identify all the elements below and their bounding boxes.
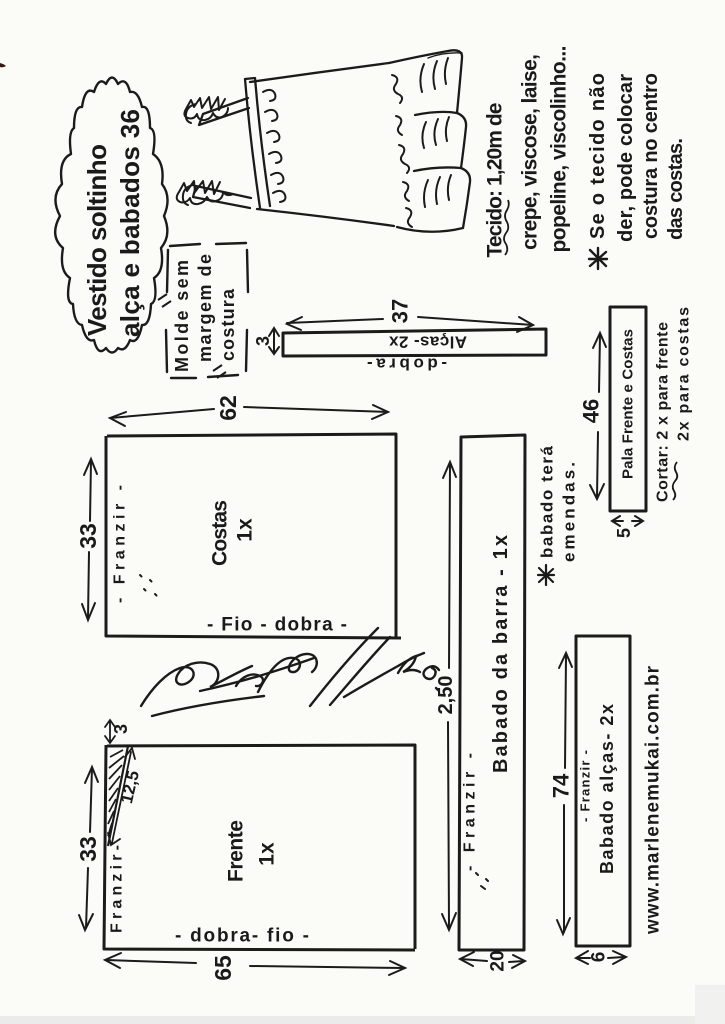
svg-text:5: 5	[614, 528, 634, 538]
svg-text:-dobra-: -dobra-	[367, 355, 447, 374]
svg-text:3: 3	[111, 724, 131, 734]
svg-text:33: 33	[75, 836, 101, 862]
svg-text:Tecido: 1,20m de: Tecido: 1,20m de	[484, 103, 507, 258]
svg-text:- Franzir -: - Franzir -	[578, 750, 593, 822]
svg-text:62: 62	[215, 395, 241, 421]
svg-text:33: 33	[75, 523, 101, 549]
svg-text:3: 3	[253, 336, 273, 346]
svg-text:Pala Frente e Costas: Pala Frente e Costas	[620, 329, 637, 479]
svg-text:1x: 1x	[234, 518, 257, 542]
svg-text:2,50: 2,50	[435, 676, 457, 715]
svg-text:- Franzir -: - Franzir -	[112, 485, 129, 603]
svg-text:Babado da barra - 1x: Babado da barra - 1x	[490, 535, 512, 773]
svg-text:37: 37	[388, 299, 413, 323]
svg-text:costura no centro: costura no centro	[640, 73, 662, 239]
svg-text:- Franzir -: - Franzir -	[462, 753, 479, 871]
svg-text:2x para costas: 2x para costas	[676, 307, 693, 441]
svg-text:margem de: margem de	[195, 254, 215, 362]
svg-text:costura: costura	[218, 288, 238, 361]
svg-text:Costas: Costas	[209, 500, 232, 566]
svg-text:6: 6	[589, 952, 610, 963]
svg-text:- Fio - dobra -: - Fio - dobra -	[207, 615, 347, 636]
svg-text:crepe, viscose, laise,: crepe, viscose, laise,	[519, 54, 542, 250]
svg-text:Molde sem: Molde sem	[172, 260, 192, 372]
svg-text:das costas.: das costas.	[665, 138, 687, 240]
svg-text:der, pode colocar: der, pode colocar	[615, 74, 637, 242]
svg-text:46: 46	[579, 399, 604, 423]
svg-text:1x: 1x	[256, 842, 279, 866]
svg-text:Cortar: 2 x para frente: Cortar: 2 x para frente	[655, 322, 672, 502]
svg-text:popeline, viscolinho...: popeline, viscolinho...	[548, 46, 571, 253]
svg-text:- dobra- fio -: - dobra- fio -	[175, 926, 309, 947]
svg-text:alça e babados 36: alça e babados 36	[115, 109, 145, 337]
svg-text:Se o tecido não: Se o tecido não	[587, 73, 609, 239]
svg-text:babado terá: babado terá	[538, 445, 557, 558]
svg-text:Franzir-: Franzir-	[109, 845, 126, 933]
svg-text:Vestido soltinho: Vestido soltinho	[82, 144, 112, 336]
svg-text:Frente: Frente	[225, 820, 248, 882]
svg-text:Babado alças- 2x: Babado alças- 2x	[597, 704, 617, 874]
svg-text:emendas.: emendas.	[560, 462, 579, 562]
svg-text:20: 20	[488, 950, 509, 971]
svg-text:74: 74	[549, 773, 574, 798]
svg-text:www.marlenemukai.com.br: www.marlenemukai.com.br	[643, 665, 664, 935]
svg-text:12,5: 12,5	[117, 769, 143, 806]
svg-text:Alças- 2x: Alças- 2x	[388, 333, 467, 352]
svg-text:65: 65	[210, 955, 236, 981]
